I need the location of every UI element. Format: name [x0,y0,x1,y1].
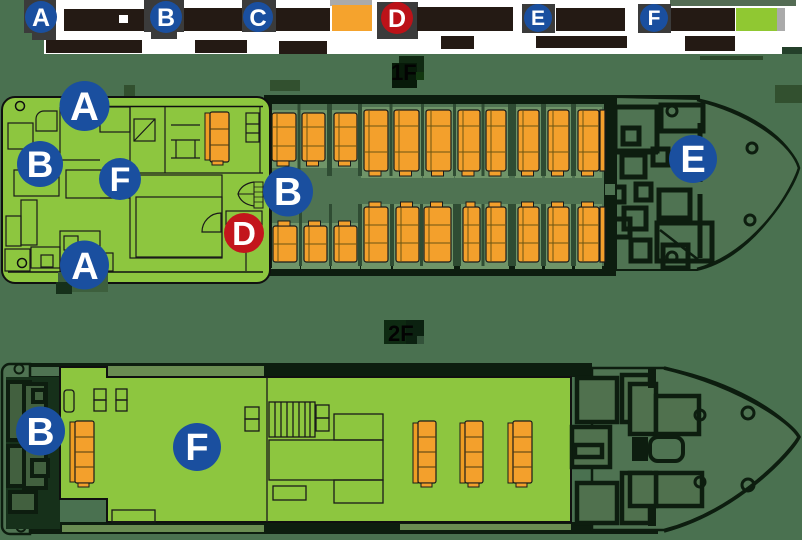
svg-text:E: E [531,7,545,30]
svg-text:F: F [110,161,131,199]
svg-text:A: A [70,85,99,129]
svg-text:2F: 2F [388,321,414,346]
svg-text:A: A [71,246,98,288]
svg-text:A: A [32,4,50,32]
svg-text:D: D [388,5,406,33]
svg-text:D: D [232,215,256,252]
svg-text:C: C [249,5,266,32]
svg-text:B: B [26,411,54,454]
svg-text:F: F [648,7,661,30]
svg-text:F: F [185,427,208,469]
svg-text:B: B [157,4,175,32]
svg-text:B: B [274,171,302,214]
svg-text:E: E [680,139,705,181]
svg-text:B: B [27,144,54,185]
svg-text:1F: 1F [391,60,417,85]
